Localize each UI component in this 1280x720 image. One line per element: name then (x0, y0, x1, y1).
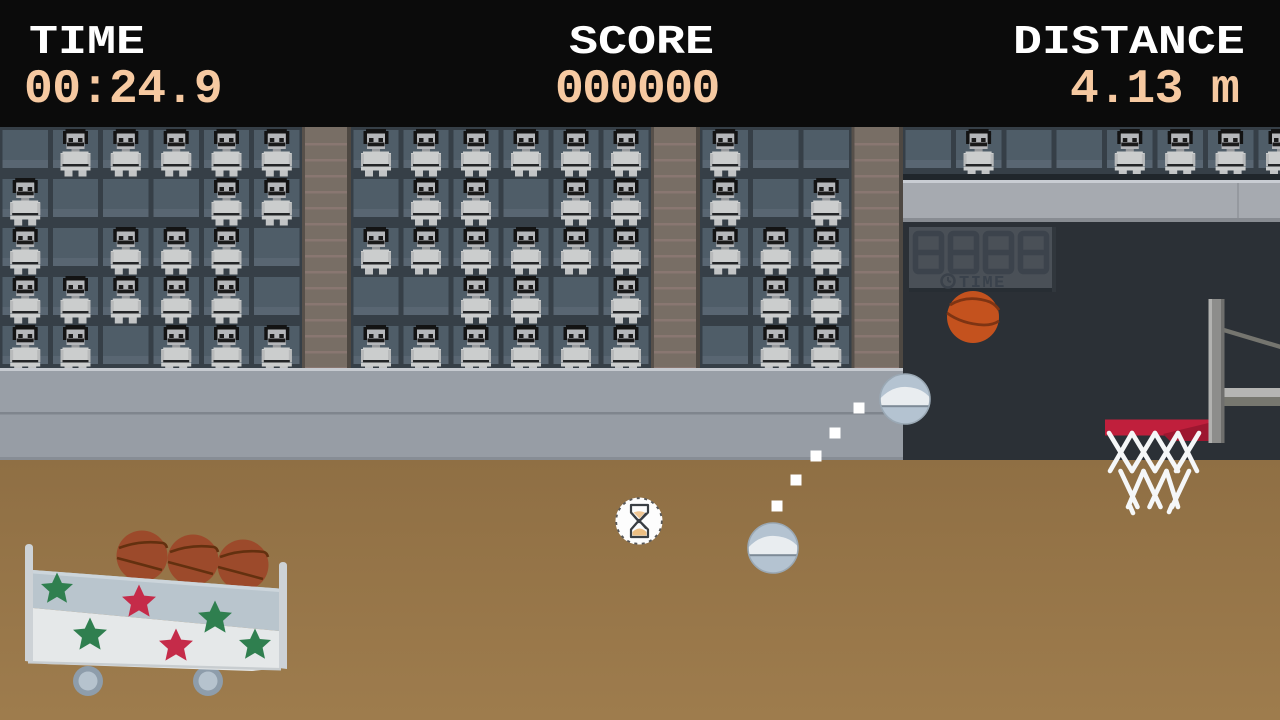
svg-text:TIME: TIME (959, 274, 1006, 293)
